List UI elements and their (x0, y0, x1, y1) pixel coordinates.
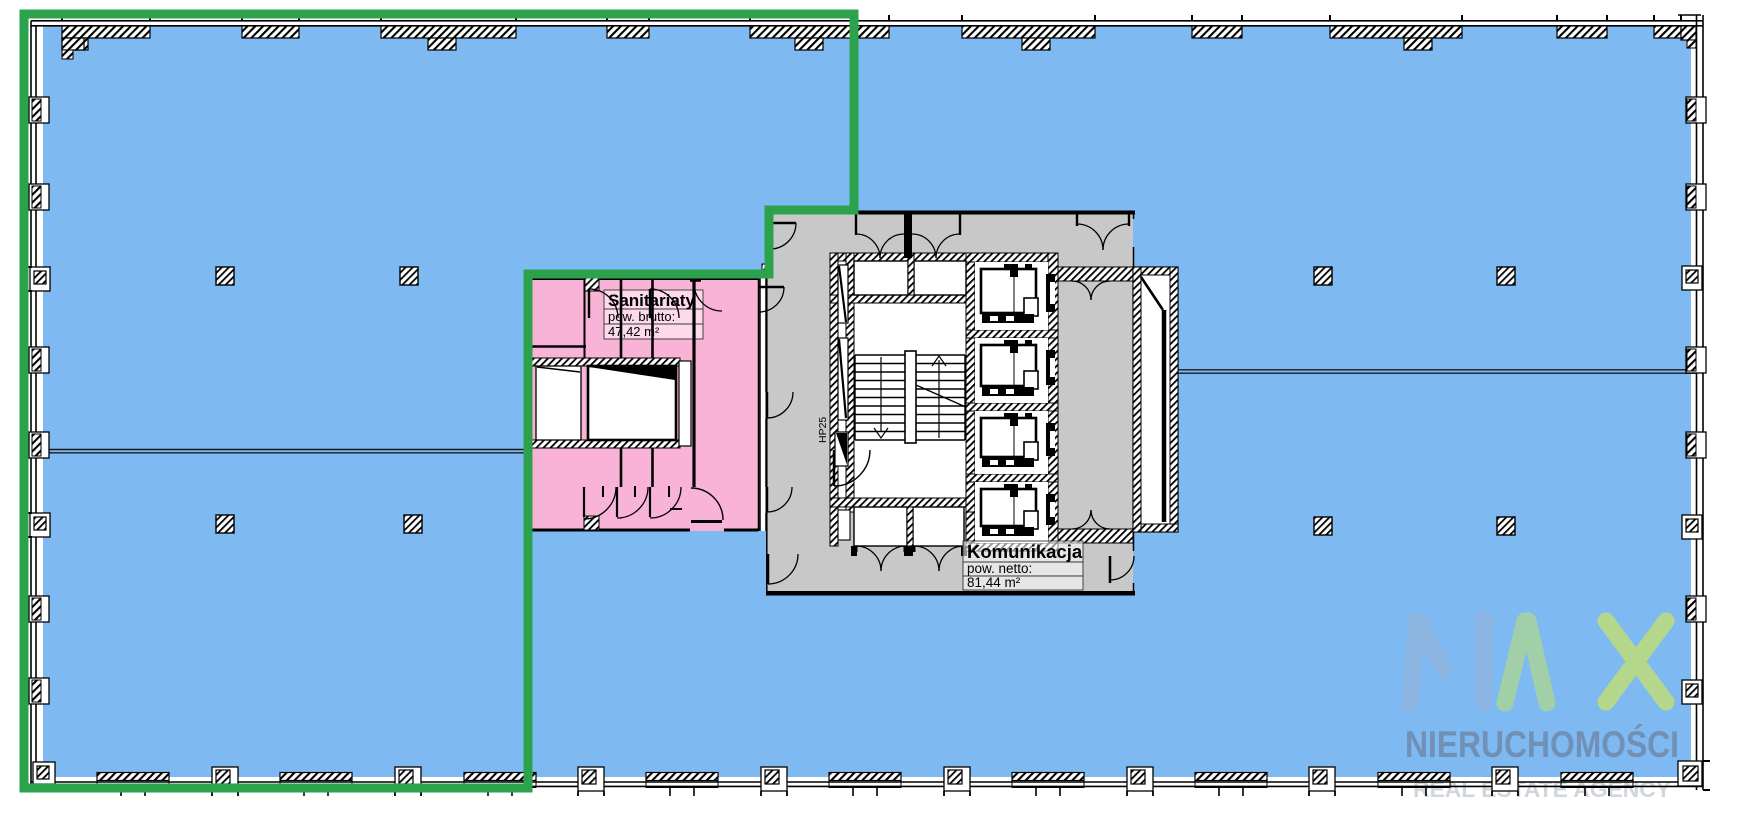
svg-text:NIERUCHOMOŚCI: NIERUCHOMOŚCI (1405, 723, 1679, 765)
svg-text:81,44 m²: 81,44 m² (967, 575, 1021, 590)
svg-text:pow. netto:: pow. netto: (967, 561, 1032, 576)
svg-text:HP25: HP25 (817, 417, 829, 443)
svg-text:Komunikacja: Komunikacja (967, 541, 1083, 562)
